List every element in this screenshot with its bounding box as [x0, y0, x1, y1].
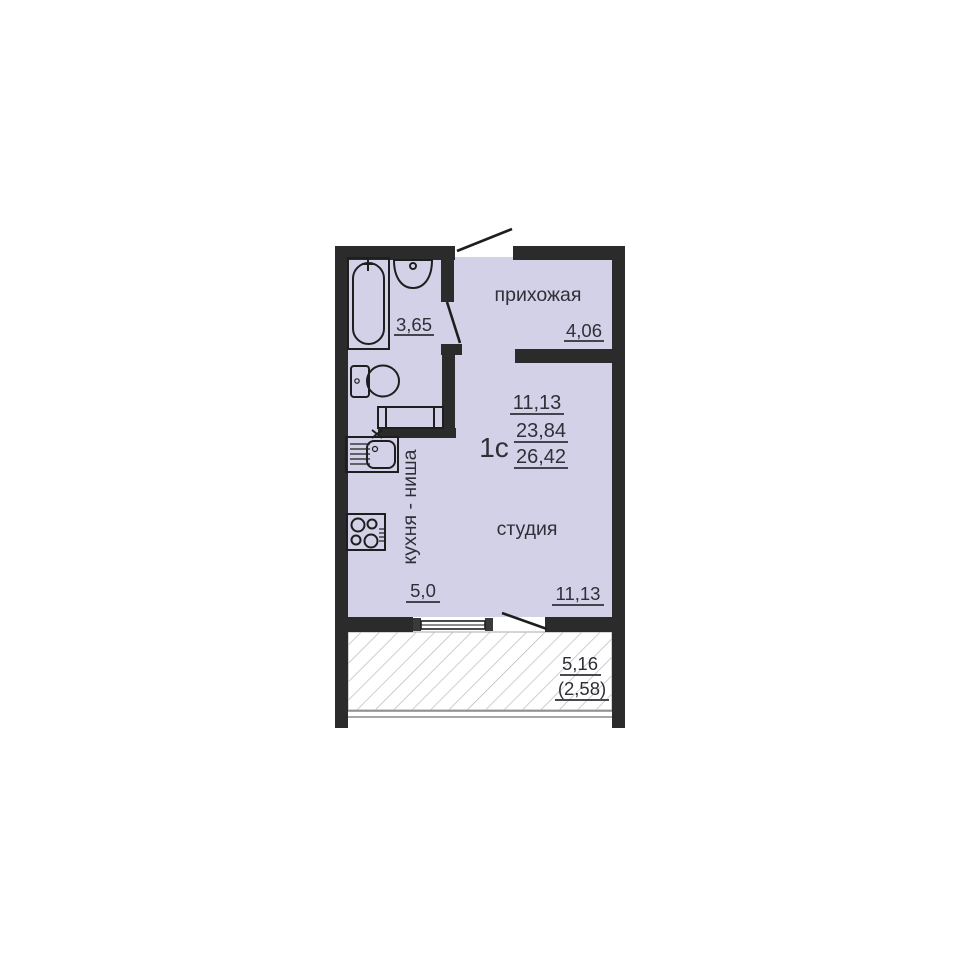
floor-plan-page: прихожая 4,06 3,65 1с 11,13 23,84 26,42 …: [0, 0, 960, 960]
floor-plan-image: прихожая 4,06 3,65 1с 11,13 23,84 26,42 …: [0, 0, 960, 960]
balcony-window: [413, 618, 493, 631]
wall-top-right-segment: [513, 246, 625, 260]
living-area-value: 11,13: [513, 392, 562, 414]
wall-balcony-divider-right: [545, 617, 625, 632]
area-without-balcony-value: 23,84: [516, 420, 566, 442]
wall-right: [612, 246, 625, 728]
balcony-area-coefficient: (2,58): [558, 678, 606, 699]
studio-area: 11,13: [556, 583, 601, 604]
total-area-value: 26,42: [516, 446, 566, 468]
wall-left: [335, 246, 348, 728]
apartment-type-label: 1с: [479, 432, 509, 463]
studio-label: студия: [497, 518, 558, 540]
kitchen-niche-label: кухня - ниша: [399, 449, 421, 564]
bathroom-area: 3,65: [396, 314, 432, 335]
window-end-cap: [485, 618, 493, 631]
window-end-cap: [413, 618, 421, 631]
wall-balcony-divider-left: [335, 617, 413, 632]
hallway-label: прихожая: [495, 284, 582, 306]
hallway-area: 4,06: [566, 320, 602, 341]
entrance-door-swing: [457, 229, 512, 251]
wall-hallway-studio-divider: [515, 349, 612, 363]
kitchen-niche-area: 5,0: [410, 580, 436, 601]
wall-bathroom-upper: [441, 260, 454, 302]
balcony-area: 5,16: [562, 653, 598, 674]
